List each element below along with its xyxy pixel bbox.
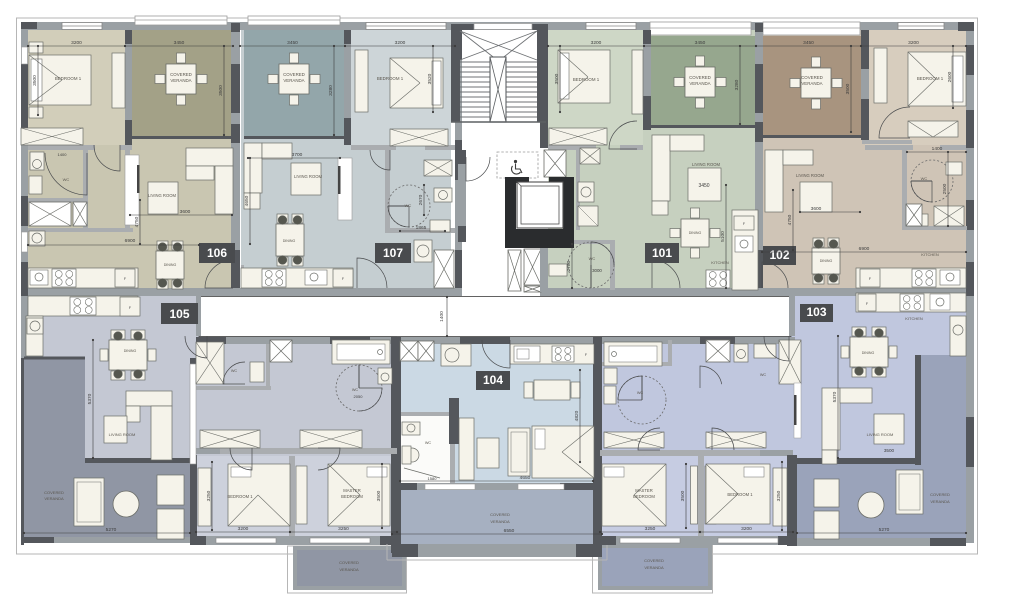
svg-text:106: 106 xyxy=(207,246,227,260)
svg-text:3280: 3280 xyxy=(734,79,740,90)
svg-text:BEDROOM: BEDROOM xyxy=(341,494,363,499)
svg-text:2500: 2500 xyxy=(942,183,948,194)
svg-text:2050: 2050 xyxy=(354,394,364,399)
svg-text:MASTER: MASTER xyxy=(343,488,360,493)
svg-text:WC: WC xyxy=(231,369,238,373)
svg-text:3600: 3600 xyxy=(180,209,191,215)
svg-text:3200: 3200 xyxy=(741,526,752,532)
svg-text:COVERED: COVERED xyxy=(44,490,64,495)
svg-text:COVERED: COVERED xyxy=(339,560,359,565)
svg-text:2670: 2670 xyxy=(418,194,424,205)
svg-text:COVERED: COVERED xyxy=(644,558,664,563)
svg-text:DINING: DINING xyxy=(164,263,177,267)
svg-text:5100: 5100 xyxy=(720,231,726,242)
svg-text:3450: 3450 xyxy=(174,40,185,46)
svg-text:3500: 3500 xyxy=(554,73,560,84)
svg-text:105: 105 xyxy=(169,307,189,321)
svg-text:BEDROOM 1: BEDROOM 1 xyxy=(55,76,82,81)
svg-text:1865: 1865 xyxy=(416,225,427,231)
svg-text:BEDROOM 1: BEDROOM 1 xyxy=(377,76,404,81)
svg-text:LIVING ROOM: LIVING ROOM xyxy=(109,432,136,437)
svg-text:4750: 4750 xyxy=(787,214,793,225)
svg-text:LIVING ROOM: LIVING ROOM xyxy=(148,193,176,198)
svg-text:3000: 3000 xyxy=(592,268,602,273)
svg-text:DINING: DINING xyxy=(862,351,875,355)
svg-text:6900: 6900 xyxy=(859,246,870,252)
svg-text:5370: 5370 xyxy=(832,391,838,402)
svg-text:2780: 2780 xyxy=(566,260,572,271)
svg-text:WC: WC xyxy=(405,203,412,208)
svg-text:WC: WC xyxy=(760,373,767,377)
svg-text:3450: 3450 xyxy=(287,40,298,46)
svg-text:3500: 3500 xyxy=(32,75,38,86)
svg-text:5270: 5270 xyxy=(106,527,117,533)
svg-text:104: 104 xyxy=(483,373,503,387)
svg-text:3200: 3200 xyxy=(238,526,249,532)
svg-text:MASTER: MASTER xyxy=(635,488,652,493)
svg-text:VERANDA: VERANDA xyxy=(283,78,304,83)
svg-text:KITCHEN: KITCHEN xyxy=(921,252,939,257)
svg-text:3200: 3200 xyxy=(395,40,406,46)
svg-text:3500: 3500 xyxy=(884,448,895,453)
svg-text:3250: 3250 xyxy=(338,526,349,532)
svg-text:WC: WC xyxy=(425,441,432,445)
svg-text:COVERED: COVERED xyxy=(490,512,510,517)
svg-text:3250: 3250 xyxy=(645,526,656,532)
svg-text:BEDROOM 1: BEDROOM 1 xyxy=(227,494,253,499)
svg-text:5370: 5370 xyxy=(87,393,93,404)
svg-text:6550: 6550 xyxy=(504,528,515,534)
svg-text:COVERED: COVERED xyxy=(801,75,823,80)
svg-text:VERANDA: VERANDA xyxy=(801,81,822,86)
svg-text:VERANDA: VERANDA xyxy=(170,78,191,83)
svg-text:2600: 2600 xyxy=(947,71,953,82)
svg-text:WC: WC xyxy=(637,391,644,395)
svg-text:3500: 3500 xyxy=(845,83,851,94)
svg-text:BEDROOM 1: BEDROOM 1 xyxy=(573,77,600,82)
svg-text:107: 107 xyxy=(383,246,403,260)
svg-text:WC: WC xyxy=(921,176,928,181)
svg-text:LIVING ROOM: LIVING ROOM xyxy=(867,432,894,437)
svg-text:WC: WC xyxy=(352,388,359,392)
svg-text:COVERED: COVERED xyxy=(689,75,711,80)
svg-text:5270: 5270 xyxy=(879,527,890,533)
svg-text:3500: 3500 xyxy=(680,490,686,501)
svg-text:103: 103 xyxy=(806,305,826,319)
svg-text:3500: 3500 xyxy=(376,490,382,501)
svg-text:3500: 3500 xyxy=(218,85,224,96)
svg-text:1400: 1400 xyxy=(439,311,445,322)
svg-text:WC: WC xyxy=(63,177,70,182)
svg-text:COVERED: COVERED xyxy=(283,72,305,77)
svg-text:3450: 3450 xyxy=(698,183,709,189)
svg-text:101: 101 xyxy=(652,246,672,260)
svg-text:1400: 1400 xyxy=(58,152,68,157)
svg-text:6900: 6900 xyxy=(125,238,136,244)
svg-text:COVERED: COVERED xyxy=(170,72,192,77)
svg-text:3600: 3600 xyxy=(811,206,822,212)
svg-text:DINING: DINING xyxy=(124,349,137,353)
svg-text:LIVING ROOM: LIVING ROOM xyxy=(796,173,824,178)
svg-text:3200: 3200 xyxy=(908,40,919,46)
svg-text:VERANDA: VERANDA xyxy=(689,81,710,86)
svg-text:VERANDA: VERANDA xyxy=(44,496,64,501)
svg-text:BEDROOM: BEDROOM xyxy=(633,494,655,499)
svg-text:BEDROOM 1: BEDROOM 1 xyxy=(917,76,944,81)
svg-text:1400: 1400 xyxy=(932,146,943,152)
svg-text:4820: 4820 xyxy=(574,410,580,421)
svg-text:LIVING ROOM: LIVING ROOM xyxy=(294,174,322,179)
svg-text:DINING: DINING xyxy=(283,239,296,243)
svg-text:3450: 3450 xyxy=(695,40,706,46)
svg-text:3700: 3700 xyxy=(292,152,303,158)
svg-text:VERANDA: VERANDA xyxy=(339,567,359,572)
svg-text:BEDROOM 1: BEDROOM 1 xyxy=(727,492,753,497)
svg-text:WC: WC xyxy=(589,256,596,261)
svg-text:4650: 4650 xyxy=(244,195,250,206)
svg-text:3250: 3250 xyxy=(776,490,782,501)
svg-text:VERANDA: VERANDA xyxy=(644,565,664,570)
svg-text:3200: 3200 xyxy=(591,40,602,46)
svg-text:3520: 3520 xyxy=(427,73,433,84)
svg-text:3250: 3250 xyxy=(206,490,212,501)
svg-text:1580: 1580 xyxy=(428,476,438,481)
svg-text:LIVING ROOM: LIVING ROOM xyxy=(692,162,720,167)
svg-text:COVERED: COVERED xyxy=(930,492,950,497)
svg-text:VERANDA: VERANDA xyxy=(930,499,950,504)
svg-text:DINING: DINING xyxy=(820,259,833,263)
svg-text:VERANDA: VERANDA xyxy=(490,519,510,524)
svg-text:3200: 3200 xyxy=(71,40,82,46)
svg-text:3450: 3450 xyxy=(803,40,814,46)
svg-text:4750: 4750 xyxy=(134,216,140,227)
svg-text:3280: 3280 xyxy=(328,85,334,96)
svg-text:DINING: DINING xyxy=(689,231,702,235)
svg-text:KITCHEN: KITCHEN xyxy=(905,316,923,321)
svg-text:102: 102 xyxy=(769,248,789,262)
